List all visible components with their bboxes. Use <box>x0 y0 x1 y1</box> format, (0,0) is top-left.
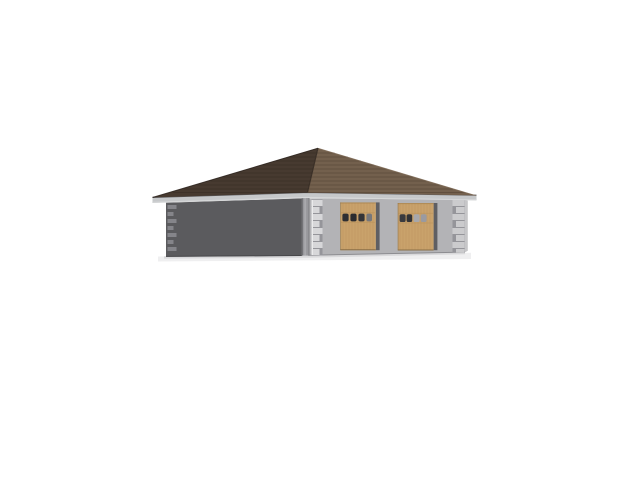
left-wall <box>166 198 302 256</box>
quoin-block <box>312 200 323 206</box>
right-wall-edge <box>465 200 468 253</box>
quoin-block <box>168 240 174 244</box>
front-wall <box>308 198 465 255</box>
quoin-block <box>312 242 323 248</box>
quoin-block <box>168 212 174 216</box>
quoin-block <box>312 228 323 234</box>
quoin-block <box>168 226 174 230</box>
front-left-quoins <box>312 200 323 256</box>
quoin-block <box>456 235 465 241</box>
door-window <box>358 214 364 222</box>
door-window <box>407 214 413 222</box>
quoin-block <box>168 233 177 237</box>
garage-3d-render <box>0 0 640 480</box>
quoin-block <box>453 228 465 234</box>
quoin-block <box>453 242 465 248</box>
quoin-block <box>456 207 465 213</box>
quoin-block <box>453 200 465 206</box>
quoin-block <box>456 221 465 227</box>
door-window <box>414 214 420 222</box>
quoin-block <box>312 214 323 220</box>
door-window <box>366 214 372 222</box>
door-jamb-shadow <box>376 202 380 250</box>
front-right-quoins <box>453 200 465 253</box>
quoin-block <box>168 205 177 209</box>
garage-door-right <box>398 203 438 250</box>
door-window <box>342 214 348 222</box>
door-window <box>400 214 406 222</box>
door-window <box>350 214 356 222</box>
quoin-block <box>168 219 177 223</box>
quoin-block <box>168 247 177 251</box>
garage-door-left <box>340 202 379 250</box>
quoin-block <box>456 249 465 253</box>
quoin-block <box>453 214 465 220</box>
door-jamb-shadow <box>434 203 438 250</box>
render-viewport <box>0 0 640 480</box>
door-window <box>421 214 427 222</box>
